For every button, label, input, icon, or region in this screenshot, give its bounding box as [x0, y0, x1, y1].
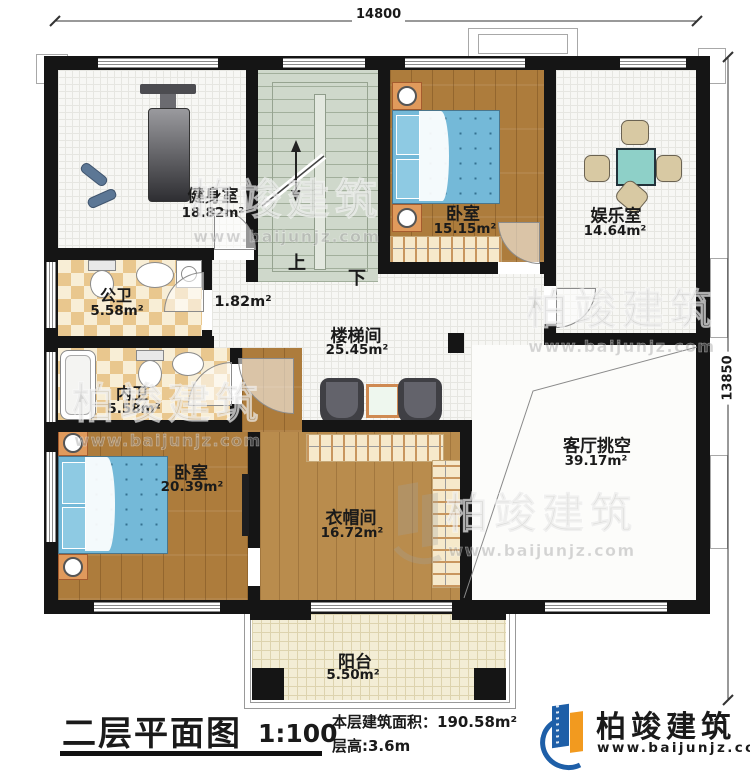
bed-pillow	[62, 507, 86, 549]
chair	[621, 120, 649, 145]
wall-bedroom2-north	[44, 420, 242, 432]
plan-scale: 1:100	[258, 719, 338, 748]
room-area-balcony: 5.50m²	[326, 667, 379, 683]
treadmill-column	[160, 94, 176, 108]
room-area-cloak: 16.72m²	[321, 525, 384, 541]
room-area-private-bath: 5.58m²	[107, 401, 160, 417]
window-gym-top	[98, 58, 218, 68]
nightstand	[58, 554, 88, 580]
doorway-ent	[544, 286, 556, 324]
room-area-bedroom2: 20.39m²	[161, 479, 224, 495]
armchair	[320, 378, 364, 426]
stair-down-label: 下	[348, 264, 366, 290]
side-table	[366, 384, 400, 418]
bed-sheet	[419, 111, 449, 201]
column-hall	[448, 333, 464, 353]
treadmill-console	[140, 84, 196, 94]
window-private-bath-left	[46, 352, 56, 422]
wall-stair-bedroom1	[378, 56, 390, 274]
wardrobe-bedroom1	[390, 236, 502, 264]
plan-title: 二层平面图	[62, 706, 242, 755]
floor-plan-page: 健身室 18.82m² 卧室 15.15m² 娱乐室 14.64m² 公卫 5.…	[0, 0, 750, 772]
room-area-ent: 14.64m²	[584, 223, 647, 239]
balcony-column-left	[252, 668, 284, 700]
dimension-right: 13850	[721, 351, 736, 404]
exterior-pier	[710, 258, 728, 338]
balcony-pier-left	[250, 600, 311, 620]
chair	[656, 155, 682, 182]
window-bedroom2-left	[46, 452, 56, 542]
bathtub	[60, 350, 96, 420]
window-bedroom1-top	[405, 58, 525, 68]
room-area-gym: 18.82m²	[182, 205, 245, 221]
wall-bath-divider	[44, 336, 214, 348]
nightstand	[392, 82, 422, 110]
room-area-hall: 25.45m²	[326, 342, 389, 358]
balcony-floor	[252, 614, 506, 700]
floor-area-text: 本层建筑面积：190.58m²	[332, 711, 517, 732]
stair-up-label: 上	[288, 249, 306, 275]
dimension-top: 14800	[352, 7, 405, 22]
nightstand	[58, 430, 88, 456]
doorway-bedroom2-cloak	[248, 548, 260, 586]
window-void-bottom	[545, 602, 667, 612]
sink	[172, 352, 204, 376]
window-ent-top	[620, 58, 686, 68]
balcony-column-right	[474, 668, 506, 700]
floor-height-text: 层高:3.6m	[332, 735, 410, 756]
window-stair-top	[283, 58, 365, 68]
bed-sheet	[85, 457, 115, 551]
bed-bedroom2	[58, 456, 168, 554]
bed-pillow	[396, 159, 420, 199]
wall-cloak-north	[302, 420, 472, 432]
doorway-bedroom1	[498, 262, 540, 274]
balcony-slider-door	[311, 602, 452, 612]
room-area-niche: 1.82m²	[214, 294, 271, 310]
room-area-bedroom1: 15.15m²	[434, 221, 497, 237]
room-label-gym: 健身室	[188, 182, 239, 207]
wall-cloak-east	[460, 420, 472, 612]
chair	[584, 155, 610, 182]
bed-bedroom1	[392, 110, 500, 204]
balcony-pier-right	[452, 600, 506, 620]
window-bedroom2-bottom	[94, 602, 220, 612]
room-area-void: 39.17m²	[565, 453, 628, 469]
game-table	[616, 148, 656, 186]
bay-window-inner	[478, 34, 568, 54]
stair-stringer	[314, 94, 326, 270]
exterior-pier	[710, 455, 728, 549]
cloak-rack-top	[306, 434, 444, 462]
sink	[136, 262, 174, 288]
bed-pillow	[62, 462, 86, 504]
nightstand	[392, 204, 422, 232]
brand-logo-mark	[540, 700, 592, 762]
bed-pillow	[396, 115, 420, 155]
armchair	[398, 378, 442, 426]
living-void-floor	[472, 345, 696, 600]
wall-ent-south	[556, 333, 710, 345]
treadmill-deck	[148, 108, 190, 202]
tv	[242, 474, 249, 536]
logo-tower-orange	[570, 711, 583, 753]
brand-site: www.baijunjz.com	[597, 740, 750, 756]
room-area-public-bath: 5.58m²	[90, 303, 143, 319]
window-public-bath-left	[46, 262, 56, 328]
title-underline	[60, 751, 322, 756]
logo-tower-blue	[552, 704, 569, 748]
